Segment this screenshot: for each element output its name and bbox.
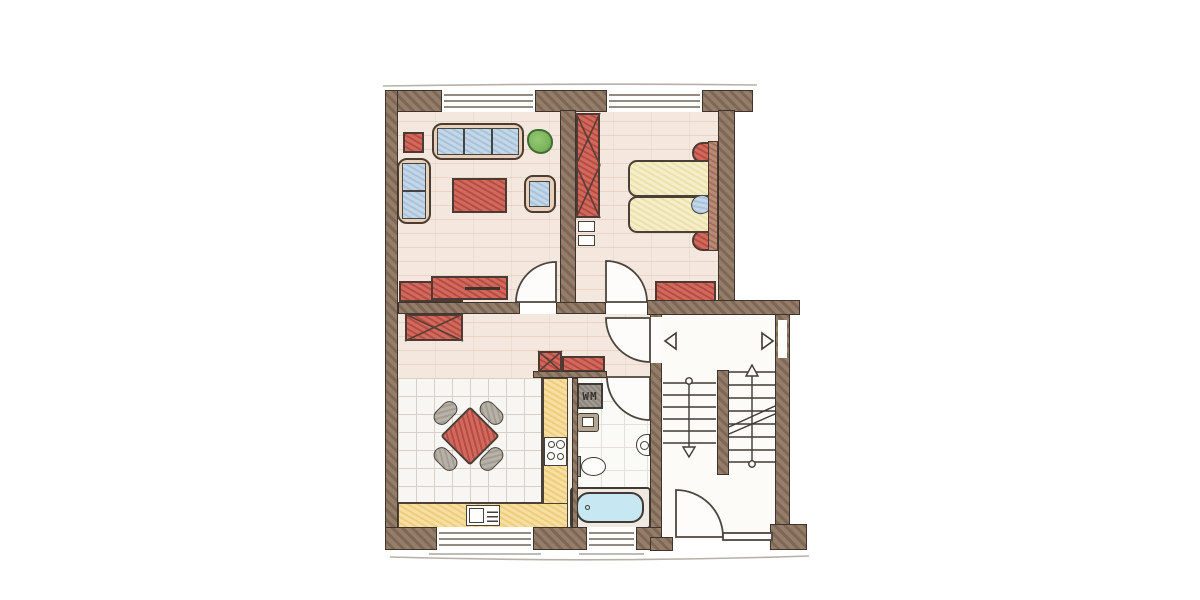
washing-machine: WM bbox=[577, 383, 603, 409]
oven bbox=[466, 505, 500, 526]
wall-bedroom-right bbox=[718, 110, 735, 315]
bed-mattress-top bbox=[628, 160, 712, 197]
bathroom-sink bbox=[577, 413, 599, 432]
window-bedroom bbox=[607, 90, 702, 112]
wall-left bbox=[385, 90, 398, 548]
sideboard-hallway bbox=[562, 356, 605, 372]
wall-shelf bbox=[578, 221, 595, 232]
sofa-cushion bbox=[464, 128, 491, 155]
sofa-cushion bbox=[492, 128, 519, 155]
basin-bowl bbox=[640, 441, 649, 450]
wall-hall-seg1 bbox=[398, 302, 520, 314]
bed-headboard bbox=[708, 141, 718, 251]
sofa-cushion bbox=[437, 128, 464, 155]
wall-top-seg3 bbox=[702, 90, 753, 112]
wall-hall-seg2 bbox=[556, 302, 606, 314]
sink-basin bbox=[582, 417, 594, 427]
wall-top-seg2 bbox=[535, 90, 607, 112]
wall-bottom-seg2 bbox=[533, 527, 587, 550]
wall-counter-bar bbox=[533, 371, 607, 378]
wall-shelf bbox=[578, 235, 595, 246]
wall-stairwell-left bbox=[650, 314, 662, 528]
cabinet-hallway bbox=[538, 351, 562, 372]
sideboard-slot bbox=[465, 287, 500, 290]
plant-icon bbox=[527, 129, 553, 154]
toilet-bowl bbox=[581, 457, 606, 476]
burner bbox=[556, 440, 565, 449]
window-bathroom bbox=[587, 527, 636, 550]
wall-bottom-seg1 bbox=[385, 527, 437, 550]
burner bbox=[557, 453, 564, 460]
window-kitchen bbox=[437, 527, 533, 550]
wall-divider-living-bedroom bbox=[560, 110, 576, 304]
floor-plan-canvas: WM bbox=[0, 0, 1200, 600]
ground-line-bottom bbox=[390, 556, 809, 560]
side-table bbox=[403, 132, 424, 153]
sofa-cushion bbox=[402, 163, 426, 191]
burner bbox=[547, 452, 555, 460]
coffee-table bbox=[452, 178, 507, 213]
wall-stairwell-bottom-left bbox=[650, 537, 673, 551]
window-living bbox=[442, 90, 535, 112]
wall-stair-middle bbox=[717, 370, 729, 475]
sofa-cushions bbox=[437, 128, 519, 155]
armchair-cushion bbox=[529, 181, 550, 207]
sofa2-cushions bbox=[402, 163, 426, 219]
wardrobe-hallway bbox=[405, 314, 463, 341]
facade-line-top bbox=[383, 84, 757, 86]
cooktop bbox=[544, 437, 567, 466]
burner bbox=[548, 441, 555, 448]
oven-door bbox=[469, 508, 484, 523]
window-stairwell bbox=[778, 320, 787, 358]
wall-stairwell-bottom-right bbox=[770, 524, 807, 550]
oven-vents bbox=[487, 510, 498, 522]
bathtub-drain bbox=[585, 505, 590, 510]
wardrobe-bedroom bbox=[576, 113, 600, 218]
sofa-cushion bbox=[402, 191, 426, 219]
wall-hall-seg3 bbox=[647, 300, 800, 315]
washing-machine-label: WM bbox=[582, 390, 597, 403]
wall-bathroom-left bbox=[572, 378, 578, 528]
